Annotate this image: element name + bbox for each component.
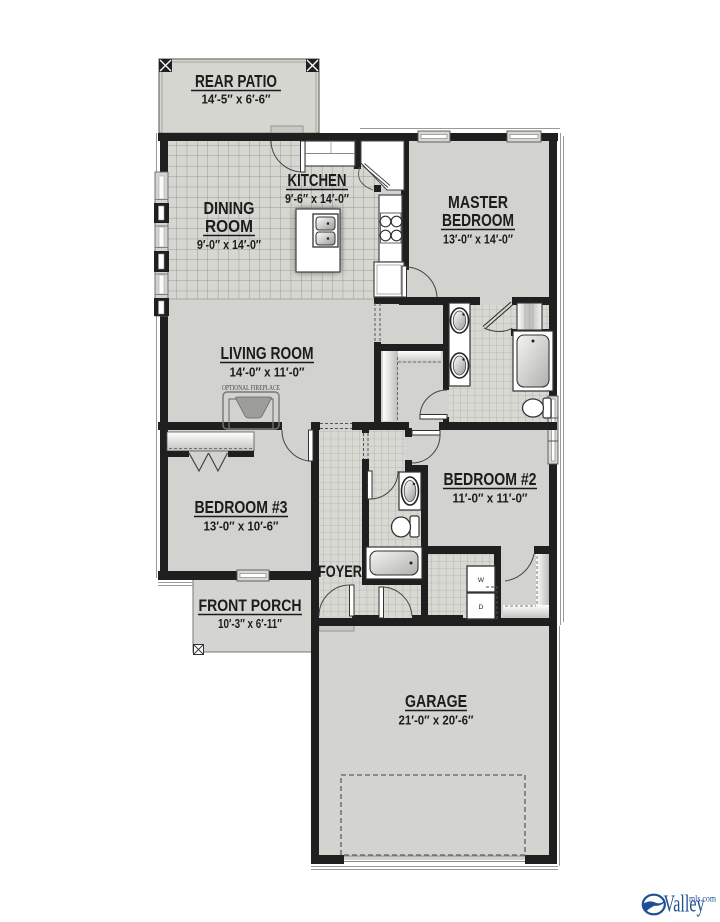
svg-text:KITCHEN: KITCHEN [288, 170, 347, 190]
svg-text:21′-0″ x 20′-6″: 21′-0″ x 20′-6″ [399, 713, 474, 728]
svg-text:ROOM: ROOM [205, 216, 253, 236]
svg-text:D: D [479, 604, 484, 611]
svg-text:13′-0″ x 10′-6″: 13′-0″ x 10′-6″ [204, 519, 279, 534]
svg-text:OPTIONAL FIREPLACE: OPTIONAL FIREPLACE [222, 383, 280, 392]
svg-text:GARAGE: GARAGE [405, 691, 467, 711]
svg-text:FOYER: FOYER [318, 563, 362, 581]
svg-text:BEDROOM #3: BEDROOM #3 [195, 497, 288, 517]
svg-text:10′-3″ x 6′-11″: 10′-3″ x 6′-11″ [218, 617, 282, 631]
svg-text:BEDROOM #2: BEDROOM #2 [444, 469, 537, 489]
svg-text:DINING: DINING [204, 198, 255, 218]
svg-text:BEDROOM: BEDROOM [442, 210, 514, 230]
svg-text:14′-5″ x 6′-6″: 14′-5″ x 6′-6″ [202, 92, 271, 107]
svg-text:REAR PATIO: REAR PATIO [195, 71, 277, 91]
svg-text:LIVING ROOM: LIVING ROOM [221, 343, 314, 363]
svg-text:mls.com: mls.com [689, 894, 716, 904]
svg-text:9′-6″ x 14′-0″: 9′-6″ x 14′-0″ [285, 191, 349, 206]
svg-text:W: W [478, 577, 485, 584]
svg-text:11′-0″ x 11′-0″: 11′-0″ x 11′-0″ [453, 491, 528, 506]
svg-text:FRONT PORCH: FRONT PORCH [199, 597, 302, 615]
svg-text:9′-0″ x 14′-0″: 9′-0″ x 14′-0″ [197, 237, 261, 252]
svg-text:14′-0″ x 11′-0″: 14′-0″ x 11′-0″ [230, 365, 305, 380]
svg-text:13′-0″ x 14′-0″: 13′-0″ x 14′-0″ [443, 232, 513, 247]
svg-text:MASTER: MASTER [448, 192, 508, 212]
